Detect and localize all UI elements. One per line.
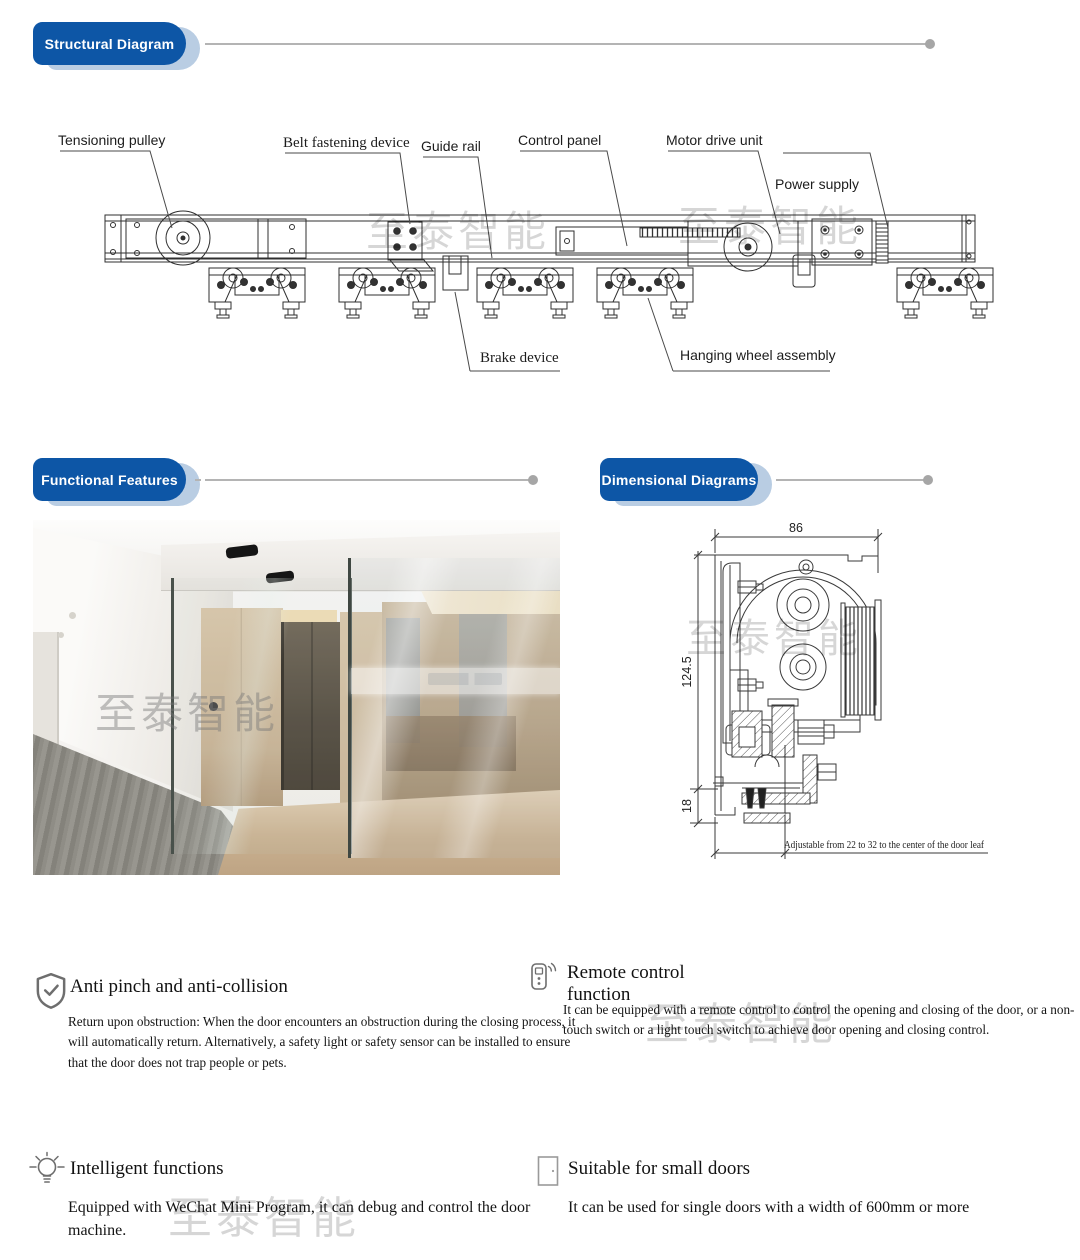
photo-fixed-glass-panel <box>348 558 560 858</box>
hanging-wheel-carriages <box>209 268 993 318</box>
dim-offset-value: 18 <box>680 799 694 813</box>
dimensional-section-header: Dimensional Diagrams <box>600 458 940 508</box>
dim-height-value: 124.5 <box>680 656 694 687</box>
watermark-text: 至泰智能 <box>95 680 279 741</box>
header-rule-dot <box>528 475 538 485</box>
dim-width-value: 86 <box>789 521 803 535</box>
header-rule <box>776 479 928 481</box>
functional-section-header: Functional Features <box>33 458 553 508</box>
tensioning-pulley-part <box>126 211 306 265</box>
brochure-page: Structural Diagram <box>0 0 1080 1260</box>
feature-body-intelligent: Equipped with WeChat Mini Program, it ca… <box>68 1196 563 1242</box>
label-power-supply: Power supply <box>775 176 859 192</box>
label-brake-device: Brake device <box>480 350 559 366</box>
photo-wall-light <box>69 612 76 619</box>
door-icon <box>536 1155 560 1187</box>
power-supply-part <box>812 219 888 265</box>
photo-wall-logo <box>428 673 502 685</box>
structural-diagram-drawing: Tensioning pulley Belt fastening device … <box>0 118 1080 388</box>
feature-title-intelligent: Intelligent functions <box>70 1158 224 1180</box>
feature-body-small-doors: It can be used for single doors with a w… <box>568 1196 1080 1219</box>
label-tensioning-pulley: Tensioning pulley <box>58 132 165 148</box>
header-rule-dot <box>923 475 933 485</box>
header-rule <box>205 43 930 45</box>
label-motor-drive-unit: Motor drive unit <box>666 132 763 148</box>
functional-features-badge: Functional Features <box>33 458 186 501</box>
label-control-panel: Control panel <box>518 132 601 148</box>
structural-badge-label: Structural Diagram <box>45 36 175 52</box>
operator-cross-section <box>713 555 881 823</box>
feature-title-small-doors: Suitable for small doors <box>568 1158 750 1180</box>
remote-control-icon <box>529 957 557 993</box>
photo-corridor-door <box>33 632 59 750</box>
dimensional-diagram-drawing: 86 124.5 18 Adjustable from 22 to 32 to … <box>660 515 1005 865</box>
automatic-door-photo: 至泰智能 <box>33 520 560 875</box>
label-belt-fastening-device: Belt fastening device <box>283 135 410 151</box>
feature-body-anti-pinch: Return upon obstruction: When the door e… <box>68 1012 586 1073</box>
dimensional-badge-label: Dimensional Diagrams <box>602 472 757 488</box>
lightbulb-icon <box>27 1150 67 1190</box>
structural-section-header: Structural Diagram <box>33 22 963 72</box>
functional-badge-label: Functional Features <box>41 472 178 488</box>
leader-lines <box>60 151 888 371</box>
label-hanging-wheel-assembly: Hanging wheel assembly <box>680 347 836 363</box>
header-rule <box>245 479 533 481</box>
feature-title-anti-pinch: Anti pinch and anti-collision <box>70 976 288 998</box>
shield-check-icon <box>33 972 69 1010</box>
belt-fastening-part <box>388 222 433 271</box>
photo-wall-light <box>58 632 64 638</box>
dimensional-diagrams-badge: Dimensional Diagrams <box>600 458 758 501</box>
label-guide-rail: Guide rail <box>421 138 481 154</box>
door-operator-rail <box>105 215 975 262</box>
feature-body-remote: It can be equipped with a remote control… <box>563 1000 1078 1041</box>
brake-device-part <box>443 256 468 290</box>
header-rule-dot <box>925 39 935 49</box>
structural-diagram-badge: Structural Diagram <box>33 22 186 65</box>
dim-adjustable-note: Adjustable from 22 to 32 to the center o… <box>784 840 984 851</box>
